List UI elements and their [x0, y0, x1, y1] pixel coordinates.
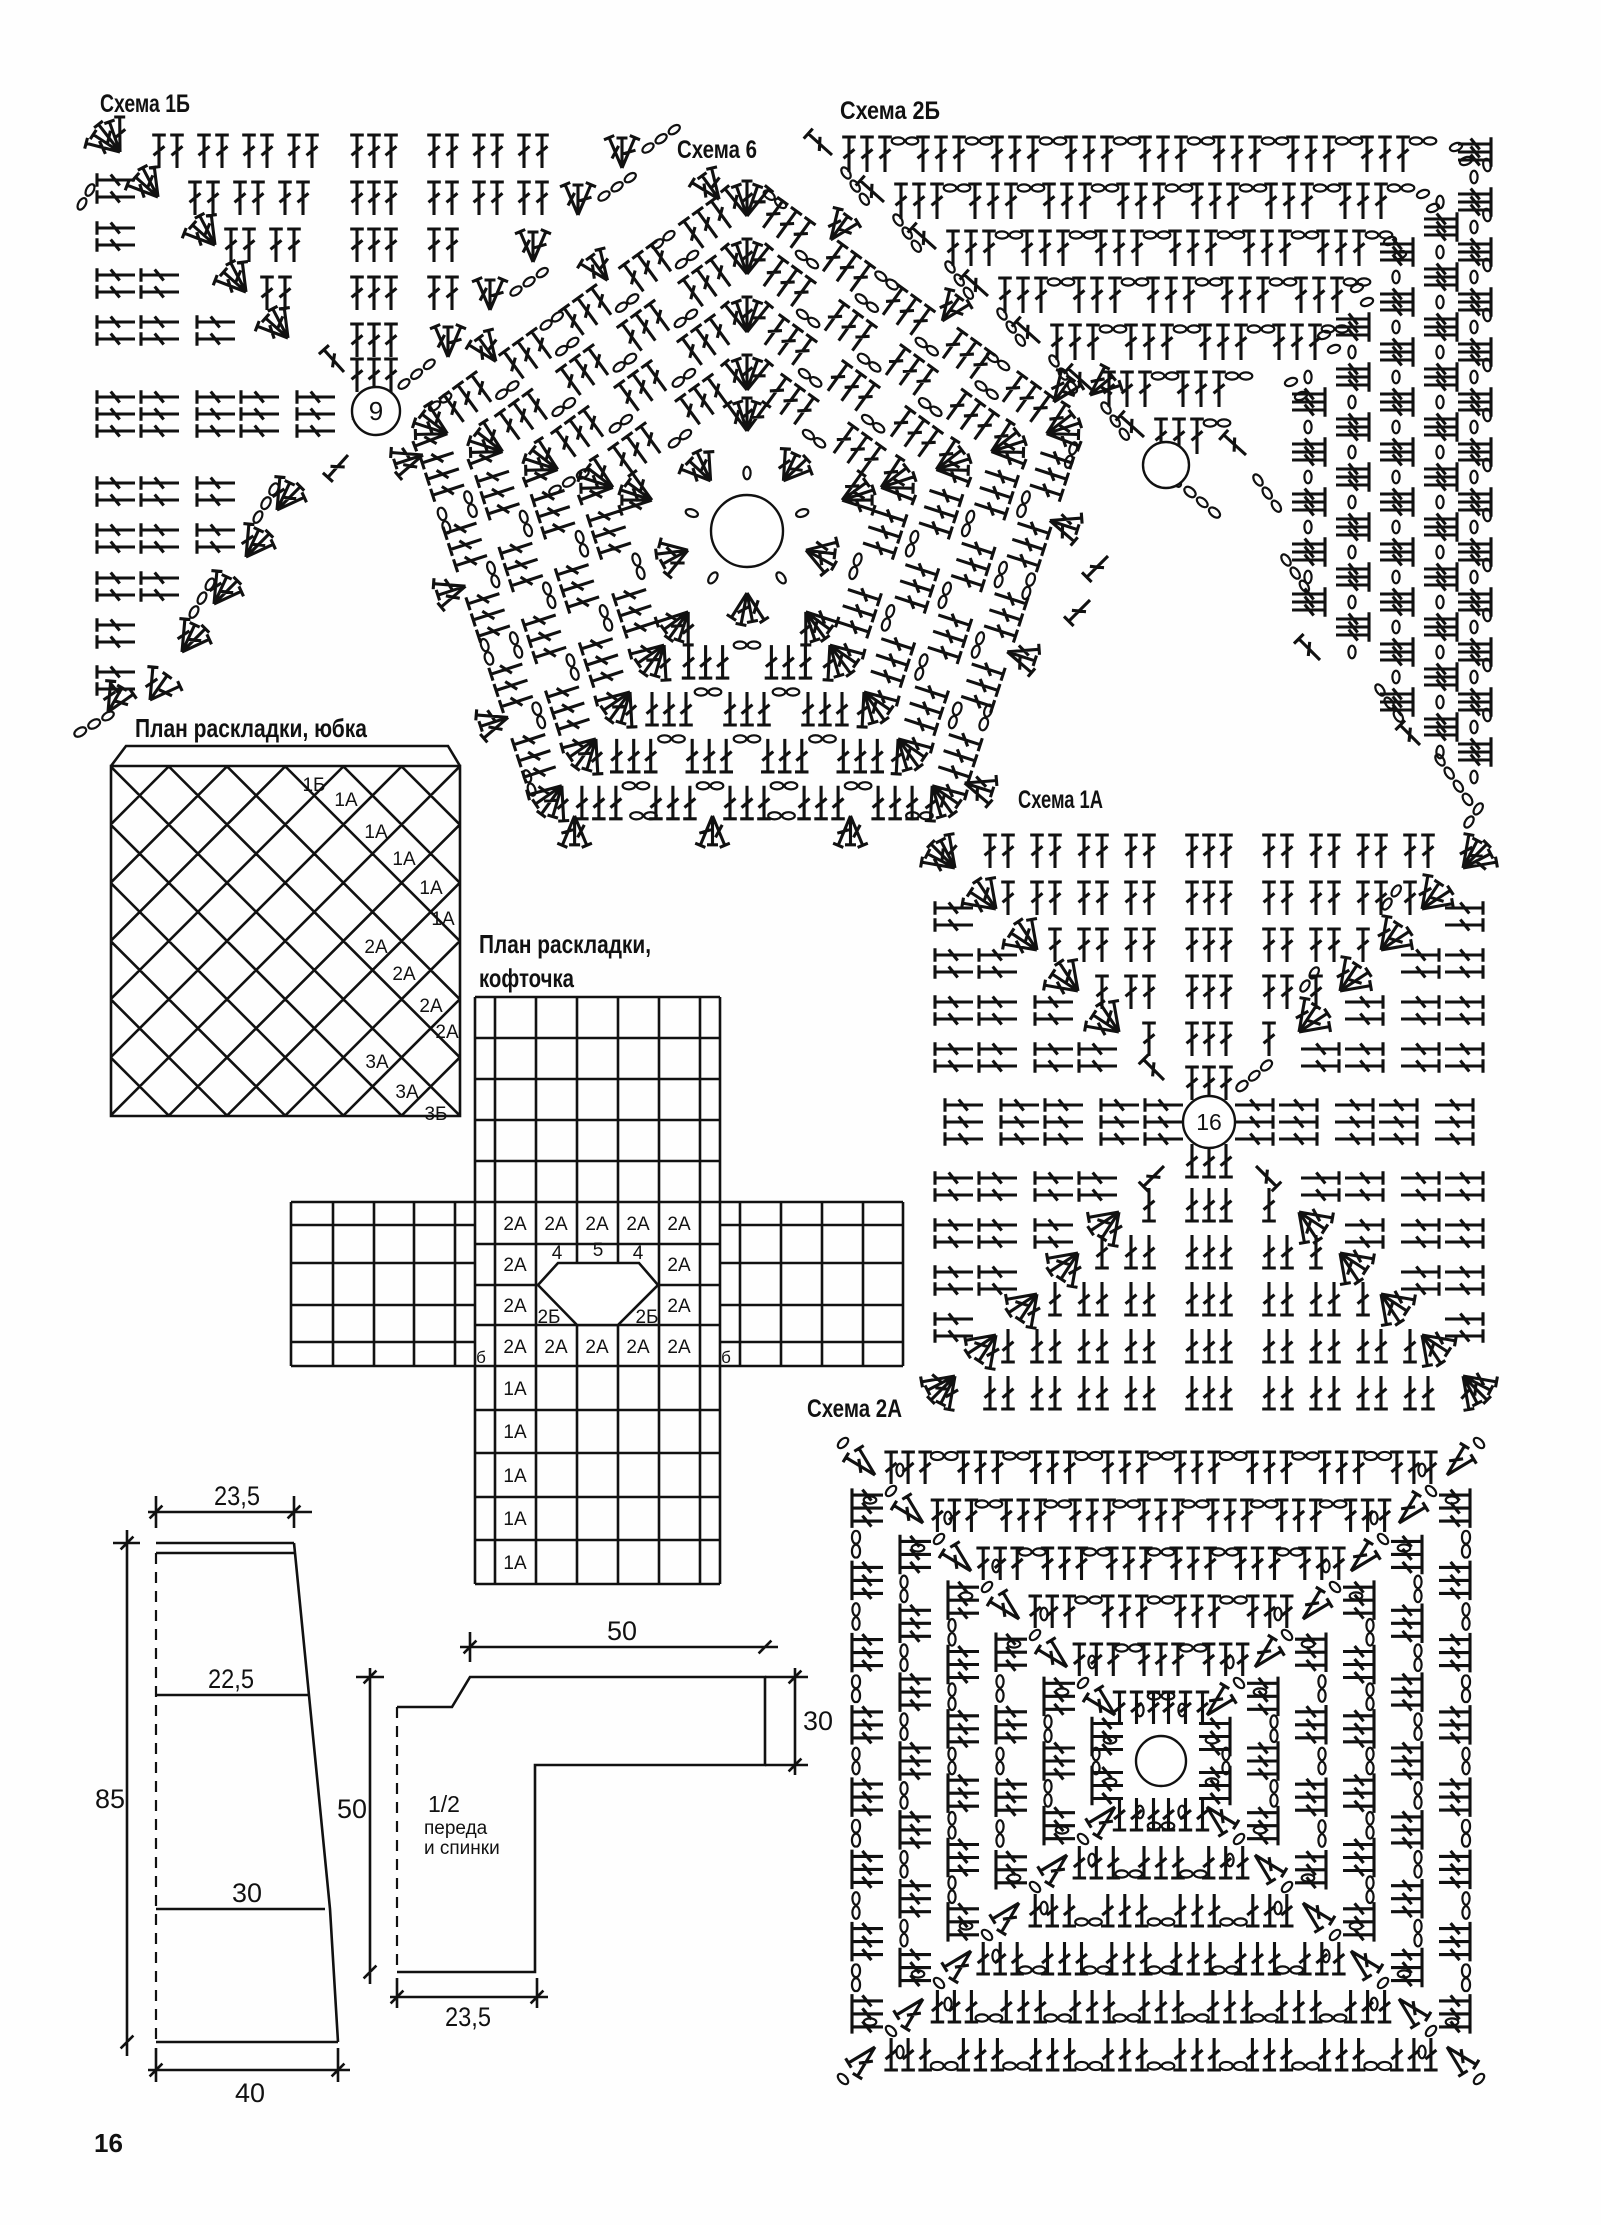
svg-text:1А: 1А: [334, 790, 358, 811]
svg-text:3А: 3А: [365, 1052, 389, 1073]
svg-text:План раскладки, юбка: План раскладки, юбка: [135, 713, 367, 743]
svg-text:30: 30: [803, 1706, 833, 1736]
svg-text:22,5: 22,5: [208, 1664, 254, 1694]
svg-text:и спинки: и спинки: [424, 1838, 500, 1859]
svg-text:2А: 2А: [626, 1337, 650, 1358]
svg-text:2А: 2А: [667, 1337, 691, 1358]
svg-text:16: 16: [94, 2128, 123, 2158]
svg-text:Схема 1Б: Схема 1Б: [100, 90, 190, 118]
svg-text:1Б: 1Б: [302, 775, 325, 796]
svg-text:3Б: 3Б: [424, 1104, 447, 1125]
svg-text:2А: 2А: [392, 964, 416, 985]
svg-text:2А: 2А: [544, 1214, 568, 1235]
svg-text:1А: 1А: [503, 1422, 527, 1443]
svg-text:Схема 2Б: Схема 2Б: [840, 97, 940, 125]
svg-text:16: 16: [1196, 1109, 1222, 1135]
svg-text:2А: 2А: [667, 1296, 691, 1317]
svg-text:2А: 2А: [503, 1255, 527, 1276]
svg-text:1А: 1А: [392, 849, 416, 870]
svg-text:2А: 2А: [585, 1337, 609, 1358]
svg-text:4: 4: [633, 1243, 644, 1264]
svg-text:1/2: 1/2: [428, 1791, 460, 1817]
svg-text:Схема 2А: Схема 2А: [807, 1395, 902, 1423]
svg-text:50: 50: [607, 1616, 637, 1646]
svg-text:2А: 2А: [435, 1022, 459, 1043]
svg-text:50: 50: [337, 1794, 367, 1824]
svg-text:1А: 1А: [503, 1379, 527, 1400]
svg-text:2А: 2А: [419, 996, 443, 1017]
svg-text:кофточка: кофточка: [479, 963, 574, 993]
svg-text:б: б: [721, 1348, 731, 1367]
svg-text:1А: 1А: [503, 1509, 527, 1530]
svg-text:2А: 2А: [544, 1337, 568, 1358]
svg-text:2А: 2А: [503, 1337, 527, 1358]
svg-text:23,5: 23,5: [214, 1481, 260, 1511]
svg-text:30: 30: [232, 1878, 262, 1908]
svg-text:2А: 2А: [503, 1296, 527, 1317]
svg-text:1А: 1А: [431, 909, 455, 930]
svg-text:2А: 2А: [667, 1255, 691, 1276]
svg-text:2А: 2А: [626, 1214, 650, 1235]
svg-text:переда: переда: [424, 1818, 488, 1839]
svg-text:5: 5: [593, 1240, 604, 1261]
svg-text:23,5: 23,5: [445, 2002, 491, 2032]
svg-text:Схема 1А: Схема 1А: [1018, 786, 1103, 814]
svg-text:2А: 2А: [667, 1214, 691, 1235]
svg-text:85: 85: [95, 1784, 125, 1814]
svg-text:Схема 6: Схема 6: [677, 136, 757, 164]
svg-text:1А: 1А: [419, 878, 443, 899]
svg-text:9: 9: [369, 396, 383, 426]
svg-text:3А: 3А: [395, 1082, 419, 1103]
svg-text:2А: 2А: [503, 1214, 527, 1235]
svg-text:1А: 1А: [503, 1466, 527, 1487]
svg-text:2Б: 2Б: [635, 1307, 658, 1328]
svg-text:1А: 1А: [503, 1553, 527, 1574]
svg-text:План раскладки,: План раскладки,: [479, 929, 651, 959]
svg-text:2А: 2А: [585, 1214, 609, 1235]
svg-text:2А: 2А: [364, 937, 388, 958]
svg-text:б: б: [476, 1348, 486, 1367]
svg-text:40: 40: [235, 2078, 265, 2108]
svg-text:4: 4: [552, 1243, 563, 1264]
svg-text:1А: 1А: [364, 822, 388, 843]
svg-text:2Б: 2Б: [537, 1307, 560, 1328]
